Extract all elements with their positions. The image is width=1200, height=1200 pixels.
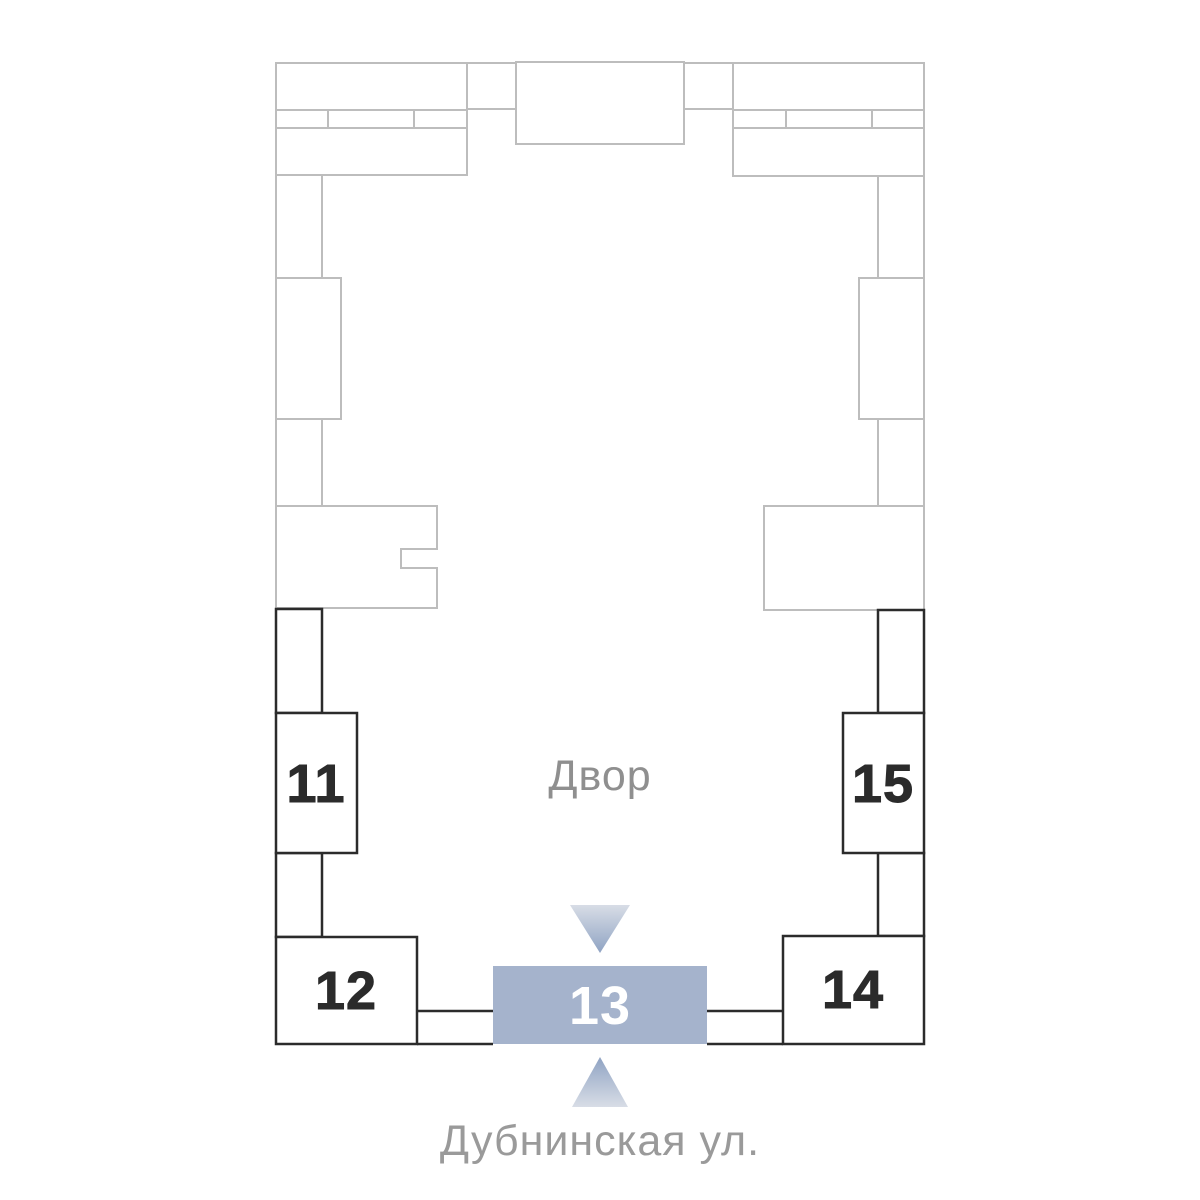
building-11-label: 11 (286, 754, 345, 814)
context-mid-block-left (276, 506, 437, 608)
context-notch-inner-left (414, 110, 467, 128)
building-13-label: 13 (569, 976, 631, 1036)
context-second-bar-right (733, 128, 924, 176)
building-12-label: 12 (315, 961, 377, 1021)
context-wide-block-right (859, 278, 924, 419)
connector-left (417, 1011, 493, 1044)
site-plan-page: 11 12 14 15 13 Двор Дубнинская у (0, 0, 1200, 1200)
section-strip-left-2 (276, 853, 322, 937)
section-strip-right-2 (878, 853, 924, 936)
context-notch-inner-right (733, 110, 786, 128)
context-notch-far-left (276, 110, 328, 128)
section-strip-left-1 (276, 609, 322, 713)
building-14-label: 14 (822, 960, 884, 1020)
context-top-bar-right (733, 63, 924, 110)
section-strip-right-1 (878, 610, 924, 713)
context-top-center-block (516, 62, 684, 144)
street-label: Дубнинская ул. (440, 1117, 760, 1165)
context-strip-left-upper (276, 175, 322, 278)
context-top-square-left (467, 63, 516, 109)
site-plan: 11 12 14 15 13 Двор Дубнинская у (0, 0, 1200, 1200)
building-14[interactable]: 14 (783, 936, 924, 1044)
connector-right (707, 1011, 783, 1044)
context-strip-left-mid (276, 419, 322, 506)
context-notch-far-right (872, 110, 924, 128)
context-strip-right-mid (878, 419, 924, 506)
context-second-bar-left (276, 128, 467, 175)
context-top-bar-left (276, 63, 467, 110)
context-top-square-right (684, 63, 733, 109)
building-15-label: 15 (852, 754, 914, 814)
context-buildings-outline (276, 62, 924, 610)
entrance-arrow-down-icon (570, 905, 630, 953)
context-strip-right-upper (878, 176, 924, 278)
building-11[interactable]: 11 (276, 713, 357, 853)
context-mid-block-right (764, 506, 924, 610)
courtyard-label: Двор (548, 752, 651, 800)
building-12[interactable]: 12 (276, 937, 417, 1044)
building-13[interactable]: 13 (493, 966, 707, 1044)
context-wide-block-left (276, 278, 341, 419)
building-15[interactable]: 15 (843, 713, 924, 853)
entrance-arrow-up-icon (572, 1057, 628, 1107)
